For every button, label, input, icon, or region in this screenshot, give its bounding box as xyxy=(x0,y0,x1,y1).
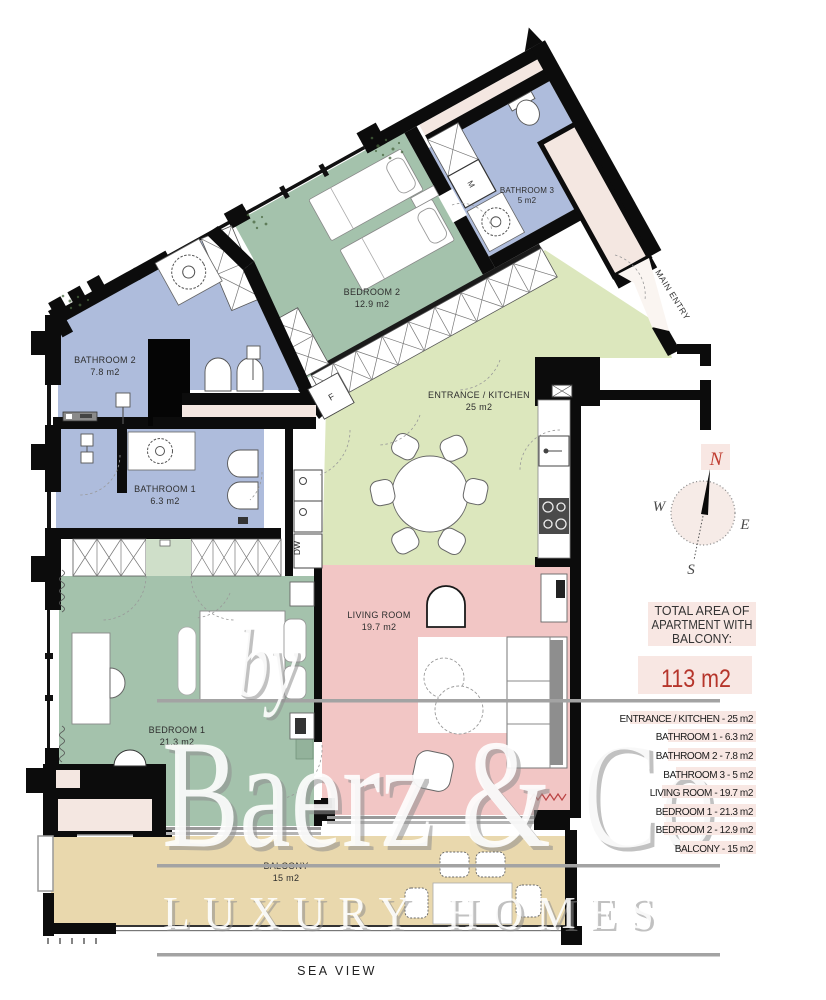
svg-text:W: W xyxy=(653,499,667,515)
svg-text:LUXURY HOMES: LUXURY HOMES xyxy=(163,887,667,938)
svg-text:E: E xyxy=(739,517,749,533)
svg-text:BATHROOM 3 - 5 m2: BATHROOM 3 - 5 m2 xyxy=(663,770,754,781)
svg-text:113 m2: 113 m2 xyxy=(661,665,731,693)
svg-text:APARTMENT WITH: APARTMENT WITH xyxy=(652,617,753,632)
svg-text:BALCONY:: BALCONY: xyxy=(672,631,732,646)
svg-text:TOTAL AREA OF: TOTAL AREA OF xyxy=(655,603,750,618)
svg-text:DW: DW xyxy=(292,541,302,555)
svg-text:25 m2: 25 m2 xyxy=(466,402,493,412)
svg-text:LIVING ROOM - 19.7 m2: LIVING ROOM - 19.7 m2 xyxy=(650,788,754,799)
svg-text:by: by xyxy=(236,607,298,718)
svg-text:BATHROOM 1: BATHROOM 1 xyxy=(134,484,196,494)
svg-text:BEDROOM 1 - 21.3 m2: BEDROOM 1 - 21.3 m2 xyxy=(656,807,754,818)
svg-text:BALCONY - 15 m2: BALCONY - 15 m2 xyxy=(675,844,754,855)
svg-text:LIVING ROOM: LIVING ROOM xyxy=(347,610,410,620)
svg-text:SEA VIEW: SEA VIEW xyxy=(297,964,377,978)
svg-text:ENTRANCE / KITCHEN - 25 m2: ENTRANCE / KITCHEN - 25 m2 xyxy=(619,714,753,725)
svg-text:6.3 m2: 6.3 m2 xyxy=(150,496,179,506)
svg-text:ENTRANCE / KITCHEN: ENTRANCE / KITCHEN xyxy=(428,390,530,400)
svg-text:N: N xyxy=(709,449,724,470)
svg-text:BEDROOM 2 - 12.9 m2: BEDROOM 2 - 12.9 m2 xyxy=(656,825,754,836)
svg-text:Baerz & Co: Baerz & Co xyxy=(162,708,715,880)
svg-text:BATHROOM 1 - 6.3 m2: BATHROOM 1 - 6.3 m2 xyxy=(656,732,754,743)
svg-text:BATHROOM 2: BATHROOM 2 xyxy=(74,355,136,365)
svg-text:S: S xyxy=(687,562,695,578)
svg-text:BATHROOM 2 - 7.8 m2: BATHROOM 2 - 7.8 m2 xyxy=(656,751,754,762)
svg-text:12.9 m2: 12.9 m2 xyxy=(355,299,390,309)
svg-text:5 m2: 5 m2 xyxy=(518,196,537,205)
svg-text:BEDROOM 2: BEDROOM 2 xyxy=(344,287,401,297)
svg-text:7.8 m2: 7.8 m2 xyxy=(90,367,119,377)
svg-text:BATHROOM 3: BATHROOM 3 xyxy=(500,186,555,195)
svg-text:19.7 m2: 19.7 m2 xyxy=(362,622,397,632)
